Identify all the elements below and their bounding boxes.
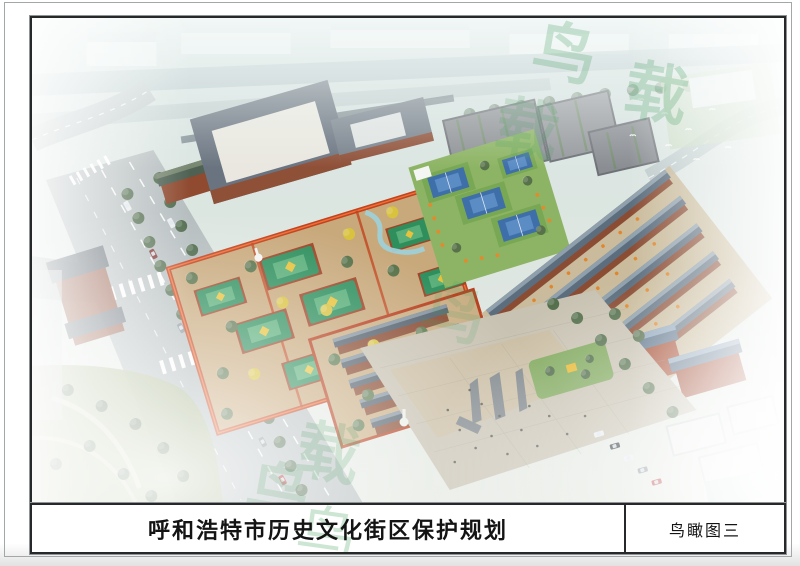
sheet-title: 呼和浩特市历史文化街区保护规划 [148,513,508,545]
svg-text:载: 载 [489,89,564,171]
title-block: 鸟 呼和浩特市历史文化街区保护规划 鸟瞰图三 [30,503,786,554]
presentation-sheet: { "sheet": { "kind": "urban-planning pre… [0,0,800,566]
title-cell: 鸟 呼和浩特市历史文化街区保护规划 [32,505,624,552]
svg-text:鸟: 鸟 [416,273,491,355]
svg-text:载: 载 [618,53,693,135]
svg-text:鸟: 鸟 [527,18,602,95]
aerial-rendering: 鸟 载 载 鸟 载 鸟 [32,18,784,502]
aerial-view-panel: 鸟 载 载 鸟 载 鸟 [30,16,786,504]
caption-cell: 鸟瞰图三 [624,505,784,552]
view-caption: 鸟瞰图三 [669,517,741,541]
